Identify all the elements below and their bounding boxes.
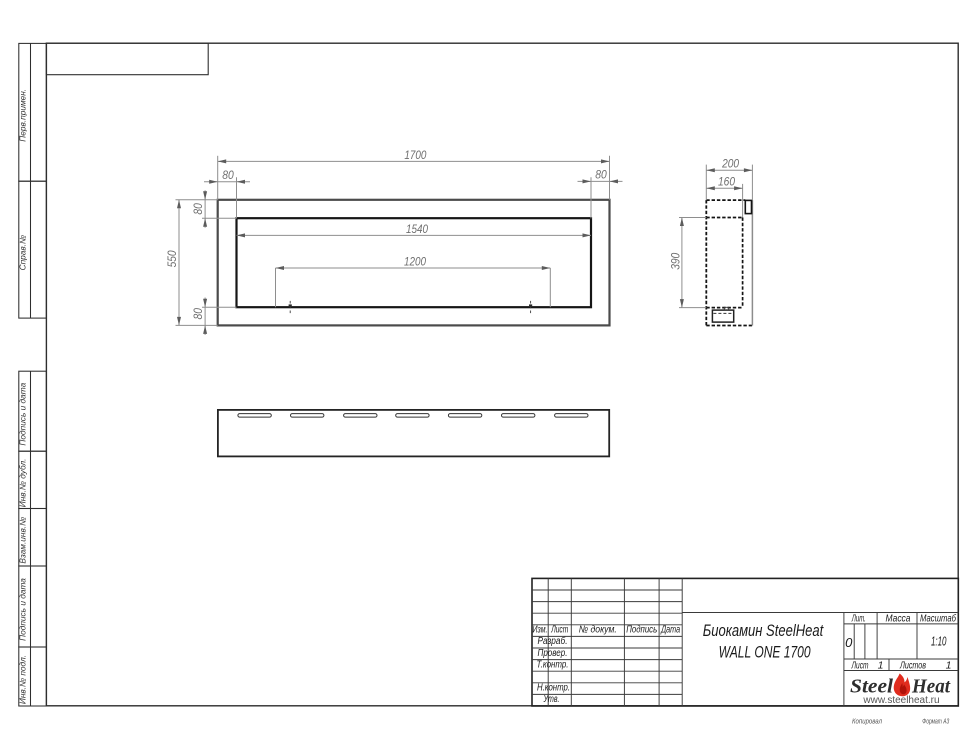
svg-text:Инв.№ подл.: Инв.№ подл.	[18, 655, 28, 704]
svg-text:www.steelheat.ru: www.steelheat.ru	[862, 695, 939, 706]
svg-text:Инв.№ дубл.: Инв.№ дубл.	[18, 458, 28, 507]
svg-text:550: 550	[165, 250, 179, 267]
svg-text:1: 1	[878, 659, 884, 671]
svg-text:Формат А3: Формат А3	[922, 716, 949, 725]
svg-text:Справ.№: Справ.№	[18, 235, 28, 270]
svg-text:80: 80	[595, 168, 607, 182]
svg-text:Масса: Масса	[886, 614, 911, 625]
svg-text:Листов: Листов	[899, 659, 926, 671]
svg-text:Утв.: Утв.	[543, 694, 560, 705]
svg-text:Биокамин SteelHeat: Биокамин SteelHeat	[703, 621, 824, 640]
svg-text:80: 80	[191, 203, 205, 215]
svg-text:Подпись и дата: Подпись и дата	[18, 578, 28, 641]
svg-text:Провер.: Провер.	[538, 648, 568, 659]
svg-text:WALL ONE 1700: WALL ONE 1700	[719, 643, 811, 662]
svg-text:Лит.: Лит.	[851, 614, 866, 625]
svg-text:Перв.примен.: Перв.примен.	[18, 89, 28, 142]
svg-text:80: 80	[222, 168, 234, 182]
svg-text:1700: 1700	[404, 148, 426, 162]
svg-text:№ докум.: № докум.	[579, 625, 617, 636]
svg-text:Подпись и дата: Подпись и дата	[18, 382, 28, 445]
svg-text:Лист: Лист	[851, 659, 869, 671]
svg-text:80: 80	[191, 308, 205, 320]
svg-text:Т.контр.: Т.контр.	[537, 659, 569, 670]
svg-text:Масштаб: Масштаб	[920, 613, 956, 625]
svg-text:1540: 1540	[406, 222, 428, 236]
svg-text:1: 1	[946, 659, 952, 671]
svg-text:Лист: Лист	[551, 625, 569, 636]
svg-text:Подпись: Подпись	[626, 625, 657, 636]
svg-text:Н.контр.: Н.контр.	[537, 683, 570, 694]
svg-text:390: 390	[668, 253, 682, 270]
svg-text:160: 160	[718, 175, 735, 189]
svg-text:1:10: 1:10	[931, 633, 947, 648]
svg-text:Копировал: Копировал	[852, 716, 882, 725]
svg-text:Взам.инв.№: Взам.инв.№	[18, 517, 28, 564]
svg-text:Изм.: Изм.	[533, 625, 548, 636]
svg-text:1200: 1200	[404, 254, 426, 268]
svg-text:Дата: Дата	[660, 625, 680, 636]
svg-text:Разраб.: Разраб.	[538, 635, 568, 647]
svg-text:200: 200	[721, 157, 739, 171]
svg-text:0: 0	[845, 635, 853, 650]
